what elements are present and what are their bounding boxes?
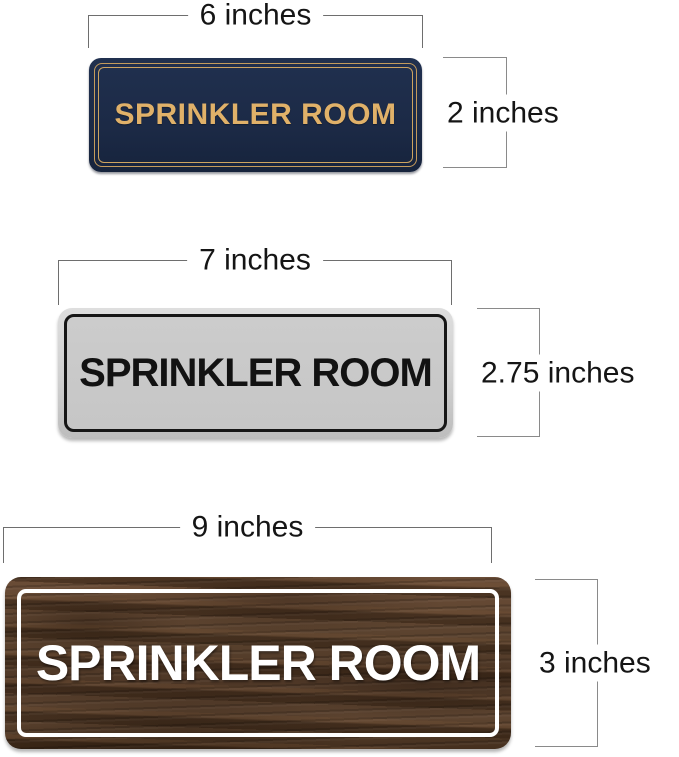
dimension-tick-bottom: [477, 436, 540, 437]
width-label-wood-sign: 9 inches: [180, 511, 316, 544]
dimension-tick-left: [3, 527, 4, 563]
dimension-tick-left: [88, 15, 89, 48]
dimension-tick-top: [477, 308, 540, 309]
sign-text-wood: SPRINKLER ROOM: [36, 634, 480, 692]
sign-text-silver: SPRINKLER ROOM: [79, 351, 432, 396]
sign-navy-6x2: SPRINKLER ROOM: [89, 58, 422, 172]
dimension-tick-right: [491, 527, 492, 563]
dimension-tick-left: [58, 260, 59, 305]
dimension-tick-right: [422, 15, 423, 48]
width-label-navy-sign: 6 inches: [188, 0, 324, 32]
height-dimension-wood-sign: 3 inches: [535, 579, 598, 747]
sign-size-comparison-image: 6 inches SPRINKLER ROOM 2 inches 7 inche…: [0, 0, 679, 757]
dimension-tick-bottom: [443, 167, 507, 168]
width-label-silver-sign: 7 inches: [187, 244, 323, 277]
height-label-silver-sign: 2.75 inches: [473, 354, 642, 391]
sign-silver-7x275: SPRINKLER ROOM: [58, 308, 453, 438]
sign-text-navy: SPRINKLER ROOM: [114, 98, 396, 132]
dimension-tick-top: [535, 579, 598, 580]
height-dimension-silver-sign: 2.75 inches: [477, 308, 540, 437]
height-dimension-navy-sign: 2 inches: [443, 57, 507, 168]
dimension-tick-top: [443, 57, 507, 58]
dimension-tick-right: [451, 260, 452, 305]
dimension-tick-bottom: [535, 746, 598, 747]
height-label-wood-sign: 3 inches: [531, 645, 659, 682]
sign-wood-9x3: SPRINKLER ROOM: [5, 577, 511, 749]
height-label-navy-sign: 2 inches: [439, 94, 567, 131]
